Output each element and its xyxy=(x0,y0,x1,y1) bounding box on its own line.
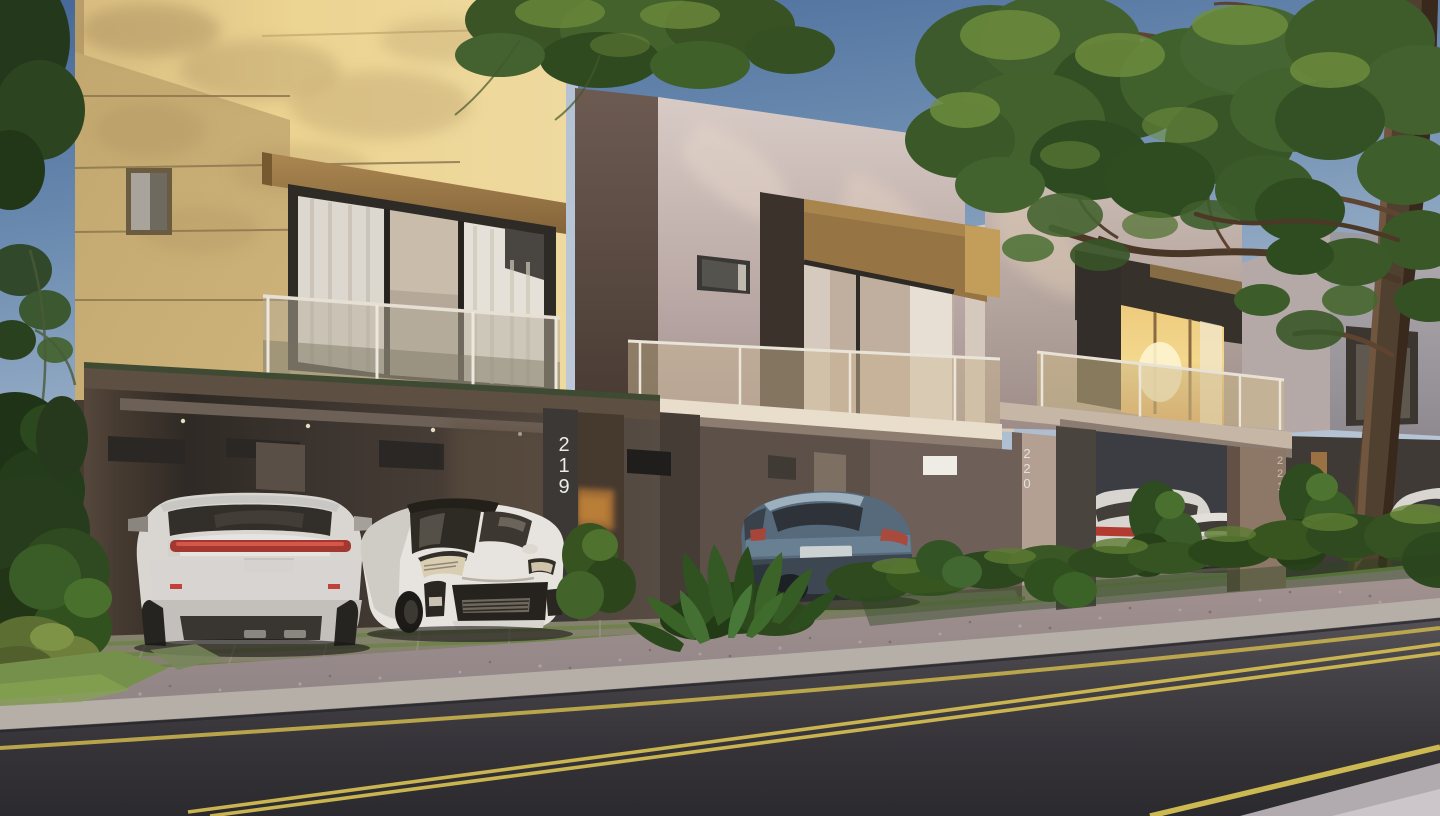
svg-text:9: 9 xyxy=(558,476,569,498)
svg-text:2: 2 xyxy=(1023,461,1030,476)
svg-text:0: 0 xyxy=(1023,476,1030,491)
svg-text:2: 2 xyxy=(1277,455,1283,467)
svg-text:1: 1 xyxy=(558,455,569,477)
svg-text:2: 2 xyxy=(1023,446,1030,461)
svg-text:2: 2 xyxy=(558,434,569,456)
svg-text:2: 2 xyxy=(1277,468,1283,480)
